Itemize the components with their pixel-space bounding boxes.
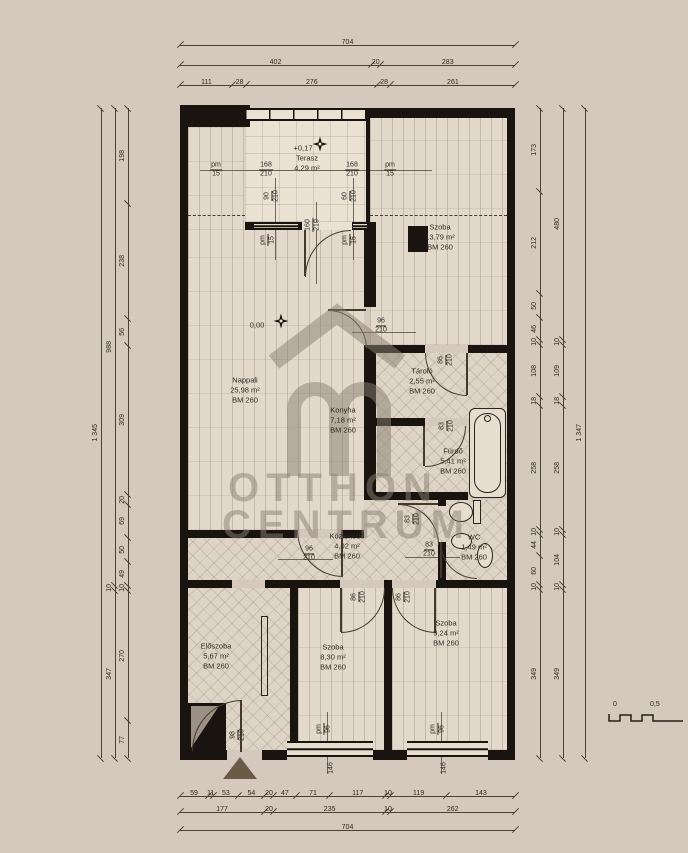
terrace-railing-window	[245, 108, 366, 121]
wc-door-leaf	[440, 542, 442, 578]
dim-segment: 28	[377, 76, 390, 89]
dim-segment: 309	[119, 346, 132, 495]
terrace-window-60	[353, 222, 367, 230]
window2-length-label: 146	[441, 762, 448, 774]
scale-bar	[608, 710, 684, 726]
window-szoba2	[287, 741, 373, 757]
dim-chain-bottom-row3: 704	[180, 821, 515, 834]
dim-segment: 988	[106, 108, 119, 585]
dim-value: 309	[119, 414, 126, 426]
dim-value: 1 347	[576, 424, 583, 442]
dim-value: 402	[270, 59, 282, 66]
dim-chain-bottom-row2: 1772023510262	[180, 803, 515, 816]
room-label-nappali: Nappali25,98 m²BM 260	[230, 375, 260, 404]
dim-value: 20	[119, 496, 126, 504]
dim-chain-bottom-row1: 5911535420477111710119143	[180, 787, 515, 800]
dim-segment: 238	[119, 204, 132, 319]
wc-lobby-door-leaf	[398, 503, 438, 505]
entrance-marker-icon	[223, 757, 257, 779]
terrace-level-value: +0,17	[294, 144, 313, 153]
dim-segment: 109	[554, 344, 567, 397]
dim-segment: 198	[119, 108, 132, 204]
terrace-window-90	[254, 222, 298, 230]
room-label-wc: WC1,49 m²BM 260	[461, 532, 487, 561]
toilet-bowl	[449, 502, 473, 522]
opening-label-door83-wc-a: 83210	[404, 513, 421, 525]
eloszoba-closet	[261, 616, 268, 696]
dim-chain-left-mid: 98810347	[106, 108, 119, 758]
dim-value: 11	[207, 790, 214, 797]
dim-value: 1 345	[92, 424, 99, 442]
dim-segment: 270	[119, 590, 132, 720]
dim-segment: 212	[531, 191, 544, 293]
dim-value: 10	[531, 583, 538, 591]
wall-hall-top-left	[188, 530, 297, 538]
dim-value: 117	[352, 790, 363, 797]
dim-value: 143	[475, 790, 487, 797]
dim-segment: 480	[554, 108, 567, 339]
wall-bottom-d	[488, 750, 515, 760]
opening-label-door83-furdo: 83210	[438, 420, 455, 432]
opening-label-pm15-in-right: pm15	[341, 234, 358, 246]
wall-terrace-divider	[366, 116, 370, 224]
wall-eloszoba-szoba2	[290, 588, 298, 750]
dim-value: 50	[119, 546, 126, 554]
projection-dashed-line-right	[370, 215, 507, 216]
dim-value: 47	[281, 790, 289, 797]
opening-label-pm15-right: pm15	[384, 161, 396, 178]
wall-left	[180, 105, 188, 760]
dim-segment: 77	[119, 721, 132, 758]
szoba1-door-leaf	[328, 309, 366, 311]
dim-value: 56	[119, 328, 126, 336]
opening-label-pm15-in-left: pm15	[259, 234, 276, 246]
dim-segment: 119	[390, 787, 447, 800]
wall-hall-bottom-c	[384, 580, 392, 588]
projection-dashed-line-left	[188, 215, 245, 216]
dim-segment: 262	[390, 803, 515, 816]
dim-value: 119	[413, 790, 424, 797]
dim-value: 46	[531, 325, 538, 333]
dim-segment: 1 345	[92, 108, 105, 758]
main-level-value: 0,00	[250, 321, 265, 330]
dim-value: 480	[554, 218, 561, 230]
floorplan-canvas: 704 40220283 1112827628261 5911535420477…	[0, 0, 688, 853]
wall-tarolo-top-right	[468, 345, 507, 353]
dim-value: 10	[554, 338, 561, 346]
dim-segment: 235	[274, 803, 386, 816]
dim-segment: 108	[531, 345, 544, 397]
entry-door-leaf	[240, 700, 242, 752]
dim-value: 238	[119, 255, 126, 267]
dim-value: 212	[531, 237, 538, 249]
dim-value: 77	[119, 736, 126, 744]
dim-value: 54	[247, 790, 255, 797]
dim-value: 10	[384, 790, 392, 797]
dim-value: 109	[554, 365, 561, 377]
dim-value: 111	[201, 79, 212, 86]
level-marker-icon	[313, 137, 328, 152]
wall-hall-bottom-d	[436, 580, 507, 588]
dim-value: 18	[531, 397, 538, 405]
room-label-kozlekedo: Közlekedő4,02 m²BM 260	[329, 531, 364, 560]
wall-bottom-c	[373, 750, 407, 760]
room-label-konyha: Konyha7,18 m²BM 260	[330, 405, 356, 434]
wall-szoba2-szoba3	[384, 588, 392, 750]
dim-value: 20	[265, 806, 273, 813]
dim-value: 104	[554, 554, 561, 566]
dim-value: 988	[106, 341, 113, 353]
dim-segment: 143	[447, 787, 515, 800]
tarolo-door-leaf	[466, 353, 468, 395]
dim-chain-top-row2: 40220283	[180, 56, 515, 69]
opening-label-168-left: 168210	[259, 161, 273, 178]
wall-hall-bottom-a	[188, 580, 232, 588]
wall-furdo-bottom	[364, 492, 468, 500]
opening-label-door83-wc-b: 83210	[423, 541, 435, 558]
scale-half-label: 0,5	[650, 701, 660, 708]
dim-value: 108	[531, 365, 538, 377]
room-label-szoba3: Szoba9,24 m²BM 260	[433, 618, 459, 647]
dim-value: 20	[265, 790, 273, 797]
dim-chain-top-row3: 1112827628261	[180, 76, 515, 89]
bathtub-faucet	[484, 415, 491, 422]
dim-value: 53	[222, 790, 230, 797]
dim-segment: 402	[180, 56, 371, 69]
dim-chain-right-outer: 1 347	[576, 108, 589, 758]
szoba2-door-leaf	[340, 588, 342, 632]
wall-tarolo-top-left	[376, 345, 425, 353]
dim-segment: 283	[381, 56, 515, 69]
opening-label-pm15-left: pm15	[210, 161, 222, 178]
opening-label-door96-hall: 96210	[303, 545, 315, 562]
opening-label-win60: 60210	[341, 190, 358, 202]
dim-value: 349	[554, 668, 561, 680]
dim-value: 276	[306, 79, 318, 86]
dim-segment: 258	[554, 406, 567, 530]
dim-value: 262	[447, 806, 459, 813]
room-label-furdo: Fürdő5,41 m²BM 260	[440, 446, 466, 475]
dim-segment: 117	[330, 787, 386, 800]
dim-segment: 261	[391, 76, 515, 89]
wall-wc-upper-stub	[438, 500, 446, 506]
dim-value: 258	[531, 462, 538, 474]
dim-value: 10	[106, 584, 113, 592]
dim-segment: 1 347	[576, 108, 589, 758]
dim-value: 49	[119, 570, 126, 578]
dim-value: 10	[119, 584, 126, 592]
dim-segment: 349	[554, 590, 567, 758]
dim-chain-right-mid: 48010109182581010410349	[554, 108, 567, 758]
bathtub-inner	[474, 413, 501, 493]
room-label-szoba1: Szoba13,79 m²BM 260	[425, 222, 455, 251]
wall-tarolo-furdo	[376, 418, 425, 426]
dim-value: 20	[372, 59, 380, 66]
dim-value: 261	[447, 79, 459, 86]
dim-value: 347	[106, 668, 113, 680]
dim-segment: 347	[106, 590, 119, 758]
dim-segment: 20	[119, 495, 132, 505]
dim-value: 10	[554, 528, 561, 536]
level-marker-icon	[274, 314, 289, 329]
dim-segment: 60	[531, 556, 544, 585]
window-szoba3	[407, 741, 488, 757]
dim-segment: 18	[554, 397, 567, 406]
wall-top-right	[366, 108, 515, 118]
opening-label-door160: 160210	[304, 218, 321, 232]
opening-label-door98-entry: 98210	[229, 729, 246, 741]
room-label-eloszoba: Előszoba5,67 m²BM 260	[201, 641, 232, 670]
wall-hall-bottom-b	[265, 580, 340, 588]
wall-kitchen-divider	[364, 345, 376, 492]
opening-label-door96-szoba: 96210	[375, 317, 387, 334]
dim-segment: 177	[180, 803, 264, 816]
dim-value: 71	[309, 790, 317, 797]
wall-bottom-b	[262, 750, 287, 760]
dim-value: 50	[531, 302, 538, 310]
dim-value: 235	[324, 806, 336, 813]
wall-right	[507, 108, 515, 760]
dim-value: 270	[119, 650, 126, 662]
opening-label-door86-szoba3: 86210	[395, 591, 412, 603]
opening-label-168-right: 168210	[345, 161, 359, 178]
dim-value: 283	[442, 59, 454, 66]
dim-segment: 704	[180, 821, 515, 834]
dim-segment: 18	[531, 397, 544, 406]
room-label-terasz: Terasz4,29 m²	[294, 153, 319, 173]
dim-value: 10	[531, 528, 538, 536]
dim-segment: 258	[531, 406, 544, 530]
dim-value: 349	[531, 668, 538, 680]
dim-segment: 56	[119, 319, 132, 346]
opening-label-win90: 90210	[263, 190, 280, 202]
dim-value: 28	[236, 79, 244, 86]
dim-value: 10	[554, 583, 561, 591]
dim-value: 69	[119, 517, 126, 525]
dim-value: 177	[216, 806, 228, 813]
opening-label-pm96-win2: pm96	[429, 723, 446, 735]
dim-value: 704	[342, 39, 354, 46]
dim-value: 10	[531, 338, 538, 346]
dim-chain-right-inner: 1732125046101081825810446010349	[531, 108, 544, 758]
dim-value: 10	[384, 806, 392, 813]
scale-zero-label: 0	[613, 701, 617, 708]
dim-segment: 349	[531, 590, 544, 758]
wall-top-left-block	[180, 105, 250, 127]
dim-value: 18	[554, 397, 561, 405]
dim-chain-top-row1: 704	[180, 36, 515, 49]
room-label-tarolo: Tároló2,55 m²BM 260	[409, 366, 435, 395]
furdo-door-leaf	[423, 426, 425, 466]
toilet-tank	[473, 500, 481, 524]
dim-value: 173	[531, 144, 538, 156]
room-label-szoba2: Szoba8,30 m²BM 260	[320, 642, 346, 671]
dim-segment: 173	[531, 108, 544, 191]
dim-value: 44	[531, 541, 538, 549]
dim-value: 198	[119, 150, 126, 162]
dim-value: 28	[380, 79, 388, 86]
dim-chain-left-inner: 19823856309206950491027077	[119, 108, 132, 758]
opening-label-door86-tarolo: 86210	[437, 354, 454, 366]
dim-chain-left-outer: 1 345	[92, 108, 105, 758]
opening-label-door86-szoba2: 86210	[350, 591, 367, 603]
dim-segment: 69	[119, 504, 132, 537]
dim-segment: 276	[246, 76, 377, 89]
dim-segment: 704	[180, 36, 515, 49]
wall-nappali-szoba1-upper	[364, 222, 376, 307]
window1-length-label: 146	[328, 762, 335, 774]
dim-value: 704	[342, 824, 354, 831]
dim-value: 258	[554, 462, 561, 474]
dim-segment: 111	[180, 76, 233, 89]
opening-label-pm96-win1: pm96	[315, 723, 332, 735]
dim-value: 59	[190, 790, 198, 797]
dim-value: 60	[531, 567, 538, 575]
dim-segment: 104	[554, 535, 567, 585]
